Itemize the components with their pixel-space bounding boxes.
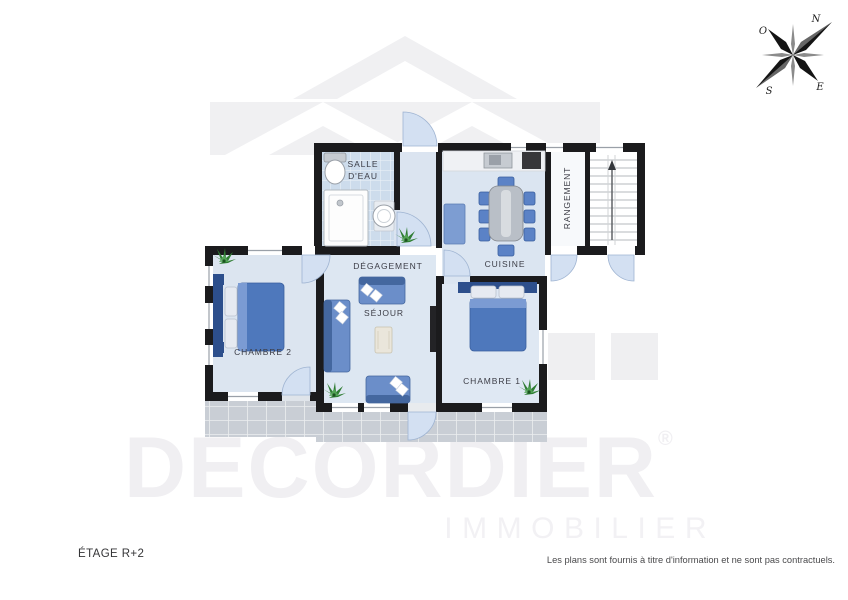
armchair-center: [375, 327, 392, 353]
compass-star-icon: [756, 22, 832, 88]
tv-icon: [430, 306, 436, 352]
compass-west-label: O: [759, 26, 767, 37]
disclaimer-text: Les plans sont fournis à titre d'informa…: [547, 555, 835, 565]
sofa-bottom: [366, 376, 410, 403]
room-label-salle-deau: SALLE D'EAU: [339, 159, 387, 183]
bathroom-sink-icon: [373, 201, 395, 231]
sofa-top: [359, 277, 405, 304]
room-label-chambre-2: CHAMBRE 2: [234, 347, 292, 357]
compass-east-label: E: [815, 82, 824, 93]
room-floors: [213, 152, 637, 403]
room-label-degagement: DÉGAGEMENT: [353, 261, 422, 271]
room-label-rangement: RANGEMENT: [562, 167, 572, 229]
compass-south-label: S: [766, 86, 773, 97]
room-label-chambre-1: CHAMBRE 1: [463, 376, 521, 386]
staircase: [590, 155, 637, 245]
floor-plan-drawing: [0, 0, 848, 600]
room-label-cuisine: CUISINE: [485, 259, 526, 269]
floor-plan-page: DECORDIER® IMMOBILIER: [0, 0, 848, 600]
compass-north-label: N: [811, 14, 822, 25]
sofa-left: [324, 300, 350, 372]
shower-icon: [324, 190, 368, 246]
terrace-left: [205, 401, 324, 437]
floor-title: ÉTAGE R+2: [78, 548, 144, 560]
room-label-sejour: SÉJOUR: [364, 308, 404, 318]
compass-rose: N O S E: [748, 6, 848, 106]
